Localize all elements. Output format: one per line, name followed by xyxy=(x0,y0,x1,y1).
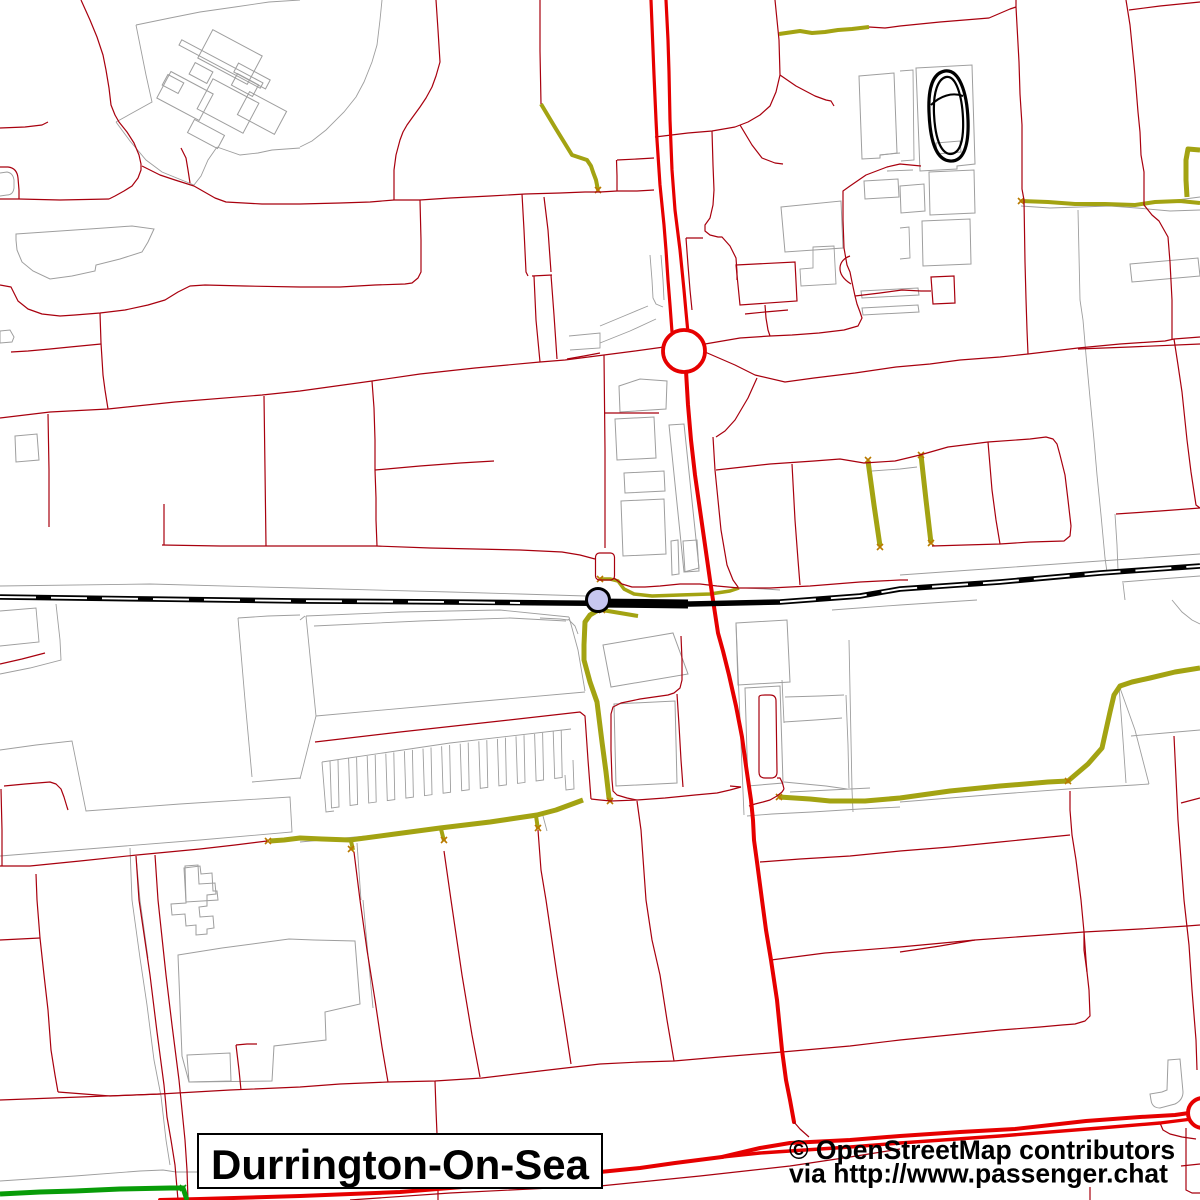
svg-text:via http://www.passenger.chat: via http://www.passenger.chat xyxy=(789,1159,1168,1189)
svg-text:Durrington-On-Sea: Durrington-On-Sea xyxy=(211,1141,590,1188)
